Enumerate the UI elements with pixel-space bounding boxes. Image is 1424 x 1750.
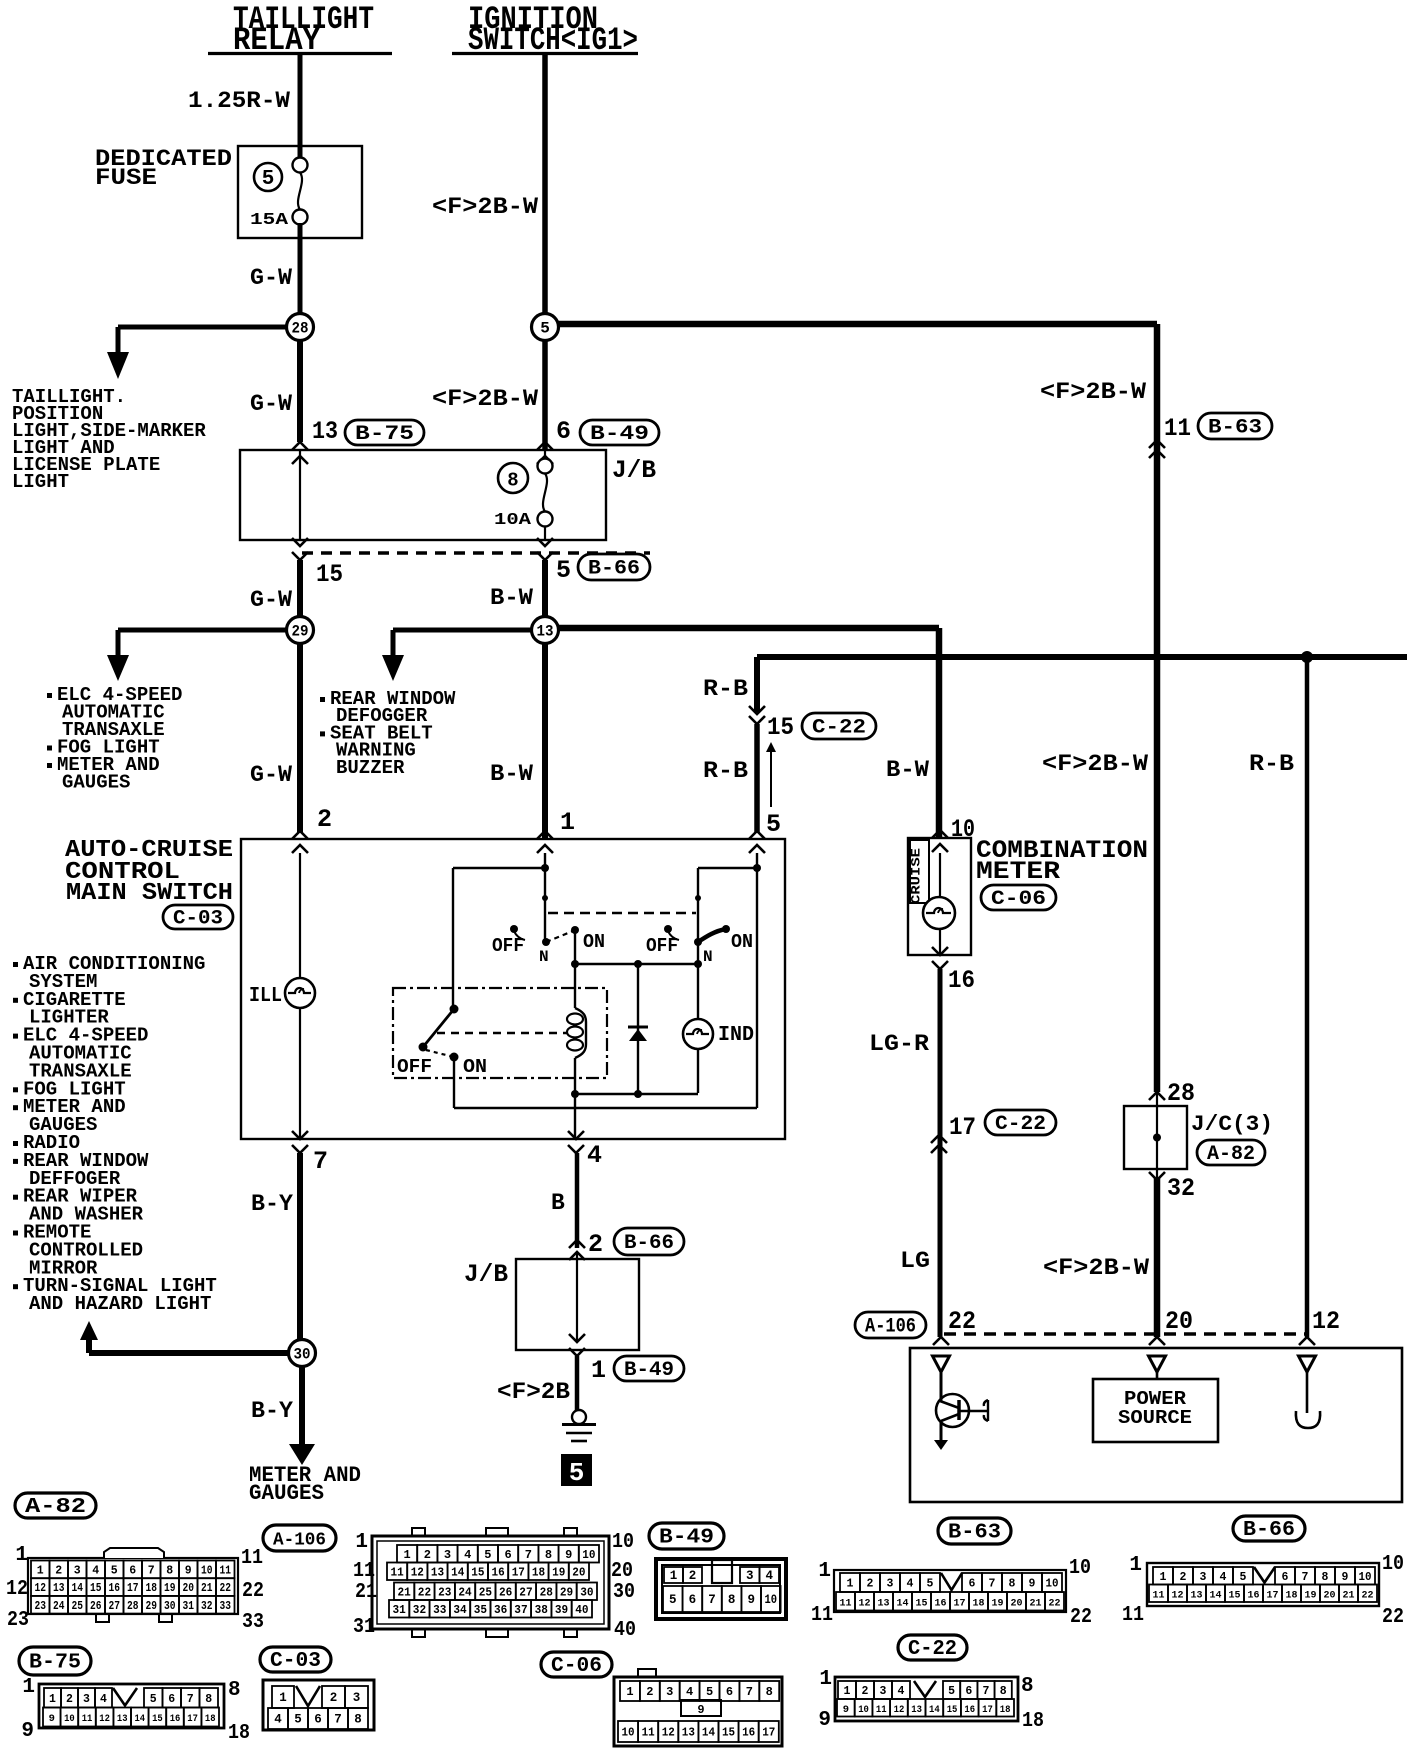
svg-text:3: 3 <box>666 1685 673 1699</box>
svg-text:C-06: C-06 <box>551 1655 602 1678</box>
svg-text:15: 15 <box>916 1597 928 1609</box>
svg-text:B-W: B-W <box>490 585 533 611</box>
svg-text:8: 8 <box>766 1685 773 1699</box>
svg-text:5: 5 <box>927 1578 934 1591</box>
svg-text:24: 24 <box>53 1600 65 1613</box>
svg-text:B-66: B-66 <box>588 558 640 581</box>
svg-text:14: 14 <box>451 1565 464 1579</box>
svg-text:B-Y: B-Y <box>251 1398 293 1424</box>
svg-text:21: 21 <box>1343 1589 1355 1601</box>
svg-text:4: 4 <box>907 1578 914 1591</box>
svg-text:6: 6 <box>129 1564 136 1577</box>
svg-text:1: 1 <box>22 1676 35 1699</box>
svg-text:2: 2 <box>424 1548 431 1562</box>
svg-text:22: 22 <box>1382 1606 1404 1629</box>
svg-text:32: 32 <box>413 1603 426 1617</box>
svg-text:B-49: B-49 <box>590 423 649 446</box>
svg-text:19: 19 <box>552 1565 565 1579</box>
svg-text:13: 13 <box>117 1713 128 1725</box>
svg-text:30: 30 <box>294 1346 311 1364</box>
svg-text:8: 8 <box>1000 1685 1007 1698</box>
svg-text:B-49: B-49 <box>659 1527 714 1550</box>
svg-text:17: 17 <box>512 1565 525 1579</box>
svg-text:3: 3 <box>746 1569 754 1583</box>
svg-text:J/B: J/B <box>464 1260 508 1289</box>
svg-text:14: 14 <box>72 1582 84 1595</box>
svg-text:14: 14 <box>135 1713 146 1725</box>
svg-text:3: 3 <box>353 1691 361 1705</box>
svg-text:2: 2 <box>330 1691 338 1705</box>
svg-text:27: 27 <box>109 1600 121 1613</box>
svg-text:C-22: C-22 <box>995 1113 1046 1136</box>
svg-text:<F>2B-W: <F>2B-W <box>1042 751 1148 777</box>
svg-text:ON: ON <box>463 1056 487 1078</box>
svg-text:11: 11 <box>220 1564 232 1577</box>
svg-text:17: 17 <box>954 1597 966 1609</box>
svg-text:B-63: B-63 <box>948 1522 1001 1545</box>
svg-text:11: 11 <box>1122 1604 1144 1627</box>
svg-text:4: 4 <box>100 1693 107 1706</box>
svg-text:6: 6 <box>965 1685 972 1698</box>
svg-text:19: 19 <box>992 1597 1004 1609</box>
svg-text:11: 11 <box>876 1704 887 1716</box>
svg-text:12: 12 <box>6 1578 28 1601</box>
svg-text:17: 17 <box>187 1713 198 1725</box>
svg-text:<F>2B-W: <F>2B-W <box>432 386 538 412</box>
svg-text:25: 25 <box>72 1600 84 1613</box>
svg-text:11: 11 <box>391 1565 404 1579</box>
svg-text:8: 8 <box>545 1548 552 1562</box>
svg-text:19: 19 <box>164 1582 176 1595</box>
svg-text:37: 37 <box>514 1603 527 1617</box>
svg-text:1: 1 <box>847 1578 854 1591</box>
svg-text:28: 28 <box>292 320 309 338</box>
svg-text:15: 15 <box>471 1565 484 1579</box>
svg-text:1: 1 <box>403 1548 410 1562</box>
svg-text:11: 11 <box>1153 1589 1165 1601</box>
svg-text:25: 25 <box>479 1585 492 1599</box>
svg-text:9: 9 <box>185 1564 192 1577</box>
svg-text:11: 11 <box>840 1597 852 1609</box>
svg-text:<F>2B-W: <F>2B-W <box>1040 379 1146 405</box>
svg-text:16: 16 <box>742 1726 755 1740</box>
svg-text:6: 6 <box>969 1578 976 1591</box>
svg-text:5: 5 <box>540 320 550 338</box>
svg-text:11: 11 <box>811 1604 833 1627</box>
svg-text:11: 11 <box>1164 414 1191 443</box>
svg-text:15: 15 <box>767 713 794 742</box>
svg-text:1: 1 <box>670 1569 678 1583</box>
svg-text:12: 12 <box>411 1565 424 1579</box>
svg-text:18: 18 <box>146 1582 158 1595</box>
svg-text:13: 13 <box>431 1565 444 1579</box>
svg-text:6: 6 <box>556 417 571 446</box>
svg-text:9: 9 <box>21 1720 34 1743</box>
svg-text:34: 34 <box>453 1603 466 1617</box>
svg-text:9: 9 <box>565 1548 572 1562</box>
svg-text:33: 33 <box>220 1600 232 1613</box>
svg-text:36: 36 <box>494 1603 507 1617</box>
svg-text:A-82: A-82 <box>25 1496 86 1519</box>
svg-text:31: 31 <box>183 1600 195 1613</box>
svg-text:40: 40 <box>614 1619 636 1642</box>
svg-text:7: 7 <box>983 1685 990 1698</box>
svg-text:A-106: A-106 <box>865 1316 916 1339</box>
svg-text:6: 6 <box>314 1713 322 1727</box>
svg-text:35: 35 <box>474 1603 487 1617</box>
svg-text:13: 13 <box>537 623 554 641</box>
svg-text:B-75: B-75 <box>29 1652 81 1675</box>
svg-text:9: 9 <box>49 1713 55 1725</box>
svg-text:5: 5 <box>669 1593 677 1607</box>
svg-text:33: 33 <box>242 1611 264 1634</box>
svg-text:15: 15 <box>90 1582 102 1595</box>
svg-text:10: 10 <box>1382 1553 1404 1576</box>
svg-text:30: 30 <box>613 1581 635 1604</box>
svg-text:5: 5 <box>150 1693 157 1706</box>
svg-text:3: 3 <box>880 1685 887 1698</box>
svg-text:17: 17 <box>762 1726 775 1740</box>
svg-text:11: 11 <box>642 1726 655 1740</box>
svg-text:10: 10 <box>858 1704 869 1716</box>
svg-text:1.25R-W: 1.25R-W <box>188 88 290 114</box>
svg-text:9: 9 <box>697 1703 704 1717</box>
svg-text:2: 2 <box>862 1685 869 1698</box>
svg-text:18: 18 <box>973 1597 985 1609</box>
svg-text:10: 10 <box>1069 1557 1091 1580</box>
svg-text:9: 9 <box>747 1593 755 1607</box>
svg-text:22: 22 <box>418 1585 431 1599</box>
svg-text:LIGHT: LIGHT <box>12 471 69 493</box>
svg-text:7: 7 <box>989 1578 996 1591</box>
svg-text:30: 30 <box>580 1585 593 1599</box>
svg-text:2: 2 <box>55 1564 62 1577</box>
svg-text:1: 1 <box>626 1685 633 1699</box>
svg-text:1: 1 <box>818 1560 831 1583</box>
svg-text:1: 1 <box>1160 1571 1167 1584</box>
svg-text:7: 7 <box>148 1564 155 1577</box>
svg-text:6: 6 <box>1282 1571 1289 1584</box>
svg-text:38: 38 <box>535 1603 548 1617</box>
svg-text:33: 33 <box>433 1603 446 1617</box>
svg-text:13: 13 <box>878 1597 890 1609</box>
svg-text:29: 29 <box>560 1585 573 1599</box>
svg-text:10: 10 <box>765 1593 778 1607</box>
svg-text:5: 5 <box>111 1564 118 1577</box>
svg-text:OFF: OFF <box>492 935 524 957</box>
svg-text:1: 1 <box>1129 1554 1142 1577</box>
svg-text:7: 7 <box>746 1685 753 1699</box>
svg-text:3: 3 <box>83 1693 90 1706</box>
svg-text:3: 3 <box>444 1548 451 1562</box>
svg-text:OFF: OFF <box>397 1056 432 1078</box>
svg-text:20: 20 <box>183 1582 195 1595</box>
svg-text:OFF: OFF <box>646 935 678 957</box>
svg-text:23: 23 <box>7 1609 29 1632</box>
svg-text:8: 8 <box>1322 1571 1329 1584</box>
svg-text:2: 2 <box>588 1230 603 1259</box>
svg-text:10: 10 <box>622 1726 635 1740</box>
svg-text:8: 8 <box>507 470 518 492</box>
svg-text:15: 15 <box>316 560 343 589</box>
svg-text:4: 4 <box>274 1713 282 1727</box>
svg-text:10: 10 <box>1046 1578 1059 1591</box>
svg-text:LG-R: LG-R <box>869 1031 929 1057</box>
svg-text:18: 18 <box>1000 1704 1011 1716</box>
svg-text:6: 6 <box>504 1548 511 1562</box>
svg-text:<F>2B-W: <F>2B-W <box>1043 1255 1149 1281</box>
svg-text:J/C(3): J/C(3) <box>1191 1112 1273 1137</box>
svg-text:20: 20 <box>1165 1307 1193 1336</box>
svg-text:B-63: B-63 <box>1208 417 1262 440</box>
svg-text:22: 22 <box>948 1307 976 1336</box>
svg-text:15: 15 <box>947 1704 958 1716</box>
svg-text:<F>2B: <F>2B <box>497 1379 570 1405</box>
svg-text:FUSE: FUSE <box>95 165 157 191</box>
svg-text:1: 1 <box>819 1668 832 1691</box>
svg-text:21: 21 <box>1030 1597 1042 1609</box>
svg-text:9: 9 <box>818 1709 831 1732</box>
svg-text:11: 11 <box>353 1560 375 1583</box>
svg-text:20: 20 <box>1324 1589 1336 1601</box>
svg-text:22: 22 <box>220 1582 232 1595</box>
svg-text:MAIN SWITCH: MAIN SWITCH <box>66 880 233 907</box>
svg-text:24: 24 <box>458 1585 471 1599</box>
svg-text:22: 22 <box>242 1580 264 1603</box>
svg-text:<F>2B-W: <F>2B-W <box>432 194 538 220</box>
svg-text:LG: LG <box>900 1248 930 1274</box>
svg-text:G-W: G-W <box>250 391 292 417</box>
svg-text:1: 1 <box>15 1544 28 1567</box>
svg-text:14: 14 <box>929 1704 940 1716</box>
svg-text:1: 1 <box>591 1356 606 1385</box>
svg-text:ILL: ILL <box>249 985 282 1008</box>
svg-text:2: 2 <box>317 805 332 834</box>
svg-text:G-W: G-W <box>250 265 292 291</box>
svg-text:1: 1 <box>844 1685 851 1698</box>
svg-text:8: 8 <box>166 1564 173 1577</box>
svg-text:13: 13 <box>312 417 338 446</box>
svg-text:GAUGES: GAUGES <box>249 1481 324 1506</box>
svg-text:8: 8 <box>228 1679 241 1702</box>
svg-text:2: 2 <box>66 1693 73 1706</box>
svg-text:12: 12 <box>35 1582 47 1595</box>
svg-text:5: 5 <box>1240 1571 1247 1584</box>
svg-text:B-66: B-66 <box>624 1232 674 1255</box>
svg-text:N: N <box>539 948 549 966</box>
svg-text:6: 6 <box>726 1685 733 1699</box>
svg-text:20: 20 <box>1011 1597 1023 1609</box>
svg-text:32: 32 <box>1167 1174 1195 1203</box>
svg-text:9: 9 <box>1029 1578 1036 1591</box>
svg-text:14: 14 <box>897 1597 909 1609</box>
svg-text:B-75: B-75 <box>355 423 414 446</box>
svg-text:13: 13 <box>911 1704 922 1716</box>
svg-text:22: 22 <box>1070 1606 1092 1629</box>
svg-text:10: 10 <box>1359 1571 1372 1584</box>
svg-text:3: 3 <box>887 1578 894 1591</box>
svg-text:21: 21 <box>398 1585 411 1599</box>
svg-text:5: 5 <box>262 168 275 191</box>
svg-text:4: 4 <box>464 1548 471 1562</box>
svg-text:7: 7 <box>525 1548 532 1562</box>
svg-text:8: 8 <box>1009 1578 1016 1591</box>
svg-text:19: 19 <box>1305 1589 1317 1601</box>
svg-text:18: 18 <box>1022 1710 1044 1733</box>
svg-text:31: 31 <box>393 1603 406 1617</box>
svg-text:6: 6 <box>689 1593 697 1607</box>
svg-text:5: 5 <box>766 810 781 839</box>
svg-text:B-W: B-W <box>886 757 929 783</box>
svg-text:28: 28 <box>127 1600 139 1613</box>
svg-text:12: 12 <box>1312 1307 1340 1336</box>
svg-text:R-B: R-B <box>1249 751 1294 777</box>
svg-text:B-66: B-66 <box>1243 1519 1295 1542</box>
svg-text:15: 15 <box>1229 1589 1241 1601</box>
svg-text:10A: 10A <box>494 511 532 530</box>
svg-text:C-03: C-03 <box>173 908 223 931</box>
svg-text:3: 3 <box>1200 1571 1207 1584</box>
svg-text:A-106: A-106 <box>273 1531 326 1551</box>
svg-text:8: 8 <box>205 1693 212 1706</box>
svg-text:26: 26 <box>499 1585 512 1599</box>
svg-text:22: 22 <box>1049 1597 1061 1609</box>
svg-text:16: 16 <box>964 1704 975 1716</box>
svg-text:15: 15 <box>152 1713 163 1725</box>
svg-text:CRUISE: CRUISE <box>909 848 924 904</box>
svg-text:10: 10 <box>582 1548 595 1562</box>
svg-text:R-B: R-B <box>703 758 748 784</box>
svg-text:8: 8 <box>354 1713 362 1727</box>
svg-text:2: 2 <box>646 1685 653 1699</box>
svg-text:1: 1 <box>279 1691 287 1705</box>
svg-text:30: 30 <box>164 1600 176 1613</box>
svg-text:40: 40 <box>575 1603 588 1617</box>
svg-text:13: 13 <box>53 1582 65 1595</box>
svg-text:7: 7 <box>334 1713 342 1727</box>
svg-text:G-W: G-W <box>250 762 292 788</box>
svg-text:11: 11 <box>82 1713 93 1725</box>
svg-text:18: 18 <box>228 1722 250 1745</box>
svg-text:5: 5 <box>569 1458 585 1488</box>
svg-text:4: 4 <box>1220 1571 1227 1584</box>
svg-text:12: 12 <box>894 1704 905 1716</box>
svg-text:4: 4 <box>686 1685 693 1699</box>
svg-text:5: 5 <box>706 1685 713 1699</box>
svg-text:C-06: C-06 <box>991 888 1046 911</box>
svg-text:12: 12 <box>99 1713 110 1725</box>
svg-text:5: 5 <box>948 1685 955 1698</box>
svg-text:14: 14 <box>1210 1589 1222 1601</box>
svg-text:23: 23 <box>35 1600 47 1613</box>
svg-text:2: 2 <box>689 1569 697 1583</box>
svg-text:13: 13 <box>1191 1589 1203 1601</box>
svg-text:14: 14 <box>702 1726 715 1740</box>
svg-text:20: 20 <box>572 1565 585 1579</box>
svg-text:11: 11 <box>241 1547 263 1570</box>
svg-text:SOURCE: SOURCE <box>1118 1407 1192 1429</box>
svg-text:23: 23 <box>438 1585 451 1599</box>
svg-text:1: 1 <box>49 1693 56 1706</box>
svg-text:7: 7 <box>187 1693 194 1706</box>
svg-text:16: 16 <box>492 1565 505 1579</box>
svg-text:39: 39 <box>555 1603 568 1617</box>
svg-text:16: 16 <box>1248 1589 1260 1601</box>
svg-text:16: 16 <box>170 1713 181 1725</box>
svg-text:17: 17 <box>1267 1589 1279 1601</box>
svg-text:ON: ON <box>731 931 753 953</box>
svg-text:17: 17 <box>949 1113 976 1142</box>
svg-text:1: 1 <box>355 1531 368 1554</box>
svg-text:4: 4 <box>765 1569 773 1583</box>
svg-text:29: 29 <box>292 623 309 641</box>
svg-text:13: 13 <box>682 1726 695 1740</box>
svg-text:10: 10 <box>612 1531 634 1554</box>
svg-text:J/B: J/B <box>612 456 656 485</box>
svg-text:17: 17 <box>127 1582 139 1595</box>
svg-text:12: 12 <box>662 1726 675 1740</box>
svg-text:5: 5 <box>294 1713 302 1727</box>
svg-text:G-W: G-W <box>250 587 292 613</box>
svg-text:21: 21 <box>355 1581 377 1604</box>
svg-text:32: 32 <box>201 1600 213 1613</box>
svg-text:GAUGES: GAUGES <box>62 772 130 794</box>
svg-text:IND: IND <box>718 1024 754 1047</box>
svg-text:B: B <box>551 1190 565 1216</box>
svg-text:6: 6 <box>168 1693 175 1706</box>
svg-text:27: 27 <box>519 1585 532 1599</box>
svg-text:16: 16 <box>948 966 975 995</box>
svg-text:15A: 15A <box>250 211 289 230</box>
svg-text:18: 18 <box>1286 1589 1298 1601</box>
svg-text:7: 7 <box>313 1147 328 1176</box>
svg-text:B-Y: B-Y <box>251 1191 293 1217</box>
svg-text:18: 18 <box>205 1713 216 1725</box>
svg-text:2: 2 <box>867 1578 874 1591</box>
svg-text:5: 5 <box>556 556 571 585</box>
svg-text:21: 21 <box>201 1582 213 1595</box>
svg-text:9: 9 <box>1342 1571 1349 1584</box>
svg-text:5: 5 <box>484 1548 491 1562</box>
svg-text:1: 1 <box>37 1564 44 1577</box>
svg-text:N: N <box>703 948 713 966</box>
svg-text:20: 20 <box>611 1560 633 1583</box>
svg-text:METER: METER <box>976 857 1060 886</box>
svg-text:12: 12 <box>859 1597 871 1609</box>
svg-text:29: 29 <box>146 1600 158 1613</box>
svg-text:3: 3 <box>74 1564 81 1577</box>
svg-text:A-82: A-82 <box>1207 1143 1255 1166</box>
svg-text:4: 4 <box>898 1685 905 1698</box>
svg-text:4: 4 <box>587 1141 602 1170</box>
svg-text:4: 4 <box>92 1564 99 1577</box>
svg-text:B-W: B-W <box>490 761 533 787</box>
svg-text:12: 12 <box>1172 1589 1184 1601</box>
svg-text:10: 10 <box>201 1564 213 1577</box>
svg-text:10: 10 <box>64 1713 75 1725</box>
svg-text:R-B: R-B <box>703 676 748 702</box>
svg-text:16: 16 <box>109 1582 121 1595</box>
svg-text:9: 9 <box>843 1704 849 1716</box>
svg-text:26: 26 <box>90 1600 102 1613</box>
svg-text:B-49: B-49 <box>624 1359 674 1382</box>
svg-text:7: 7 <box>1302 1571 1309 1584</box>
svg-text:22: 22 <box>1362 1589 1374 1601</box>
svg-text:1: 1 <box>560 808 575 837</box>
svg-text:31: 31 <box>353 1616 375 1639</box>
svg-text:28: 28 <box>540 1585 553 1599</box>
svg-text:AND HAZARD LIGHT: AND HAZARD LIGHT <box>29 1293 211 1315</box>
